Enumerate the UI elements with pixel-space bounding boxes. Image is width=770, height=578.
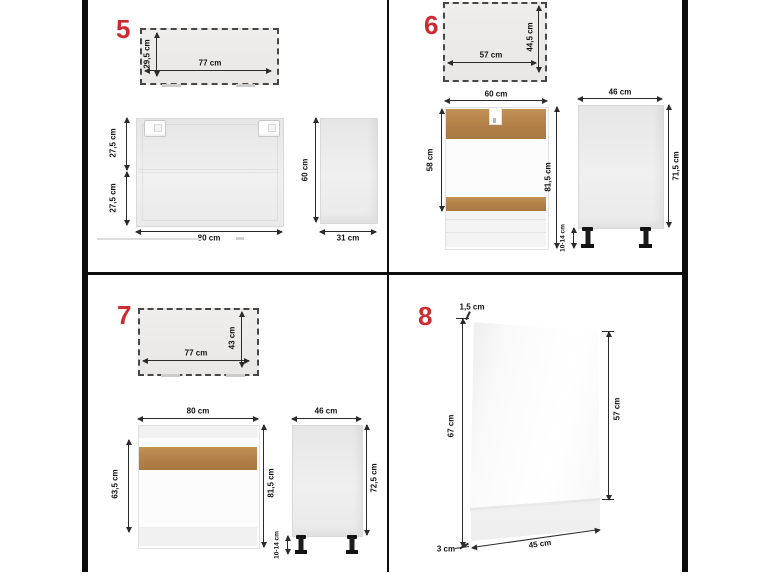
p7-front-height-label: 81,5 cm [267, 468, 276, 497]
p7-side-view [292, 425, 363, 537]
p7-front-bottom-rail [139, 528, 257, 546]
p6-front-width-label: 60 cm [485, 90, 508, 99]
p8-width-label: 45 cm [528, 538, 552, 550]
p6-side-depth-label: 46 cm [609, 88, 632, 97]
p8-height-label: 67 cm [447, 415, 456, 438]
p6-front-height-arrow [556, 107, 557, 248]
p7-side-height-arrow [366, 425, 367, 535]
p7-front-width-label: 80 cm [187, 407, 210, 416]
panel-7-number: 7 [117, 302, 131, 328]
p5-crop-artifact-mark [236, 237, 244, 240]
p6-front-opening-arrow [441, 109, 442, 211]
p7-front-door-arrow [128, 440, 129, 532]
p6-side-height-label: 71,5 cm [672, 151, 681, 180]
p8-front-height-arrow [608, 332, 609, 500]
p5-front-midline [139, 169, 279, 170]
p5-front-lower-arrow [126, 172, 127, 225]
p6-front-height-label: 81,5 cm [544, 162, 553, 191]
p6-legs-label: 10-14 cm [560, 224, 567, 252]
panel-6-number: 6 [424, 12, 438, 38]
panel-8-number: 8 [418, 303, 432, 329]
p5-front-width-arrow [136, 231, 282, 232]
frame-right-bar [682, 0, 688, 572]
p6-front-opening-label: 58 cm [426, 149, 435, 172]
p5-side-height-label: 60 cm [301, 159, 310, 182]
p8-height-arrow [462, 319, 463, 547]
p5-side-depth-label: 31 cm [337, 234, 360, 243]
p7-side-height-label: 72,5 cm [370, 463, 379, 492]
p5-topview-tab-right [236, 84, 255, 87]
p7-topview-tab-left [161, 374, 180, 377]
p7-front-door-label: 63,5 cm [111, 469, 120, 498]
p8-plinth-label: 3 cm [437, 545, 455, 554]
p6-front-skirt-seam2 [446, 232, 546, 233]
p5-topview-tab-left [162, 84, 181, 87]
p5-front-upper-label: 27,5 cm [109, 128, 118, 157]
p6-front-skirt-seam1 [446, 219, 546, 220]
p5-topview-width-arrow [145, 70, 271, 71]
p7-topview-depth-arrow [241, 312, 242, 367]
p7-leg-right [347, 535, 357, 554]
p8-front-height-label: 57 cm [613, 398, 622, 421]
p7-topview-width-arrow [143, 360, 249, 361]
p7-front-wood-band [139, 447, 257, 470]
p6-side-view [578, 105, 664, 229]
p5-side-view [320, 118, 378, 224]
p5-topview-width-label: 77 cm [199, 59, 222, 68]
p7-topview-width-label: 77 cm [185, 349, 208, 358]
p7-leg-left [296, 535, 306, 554]
p6-legs-arrow [573, 228, 574, 248]
p5-crop-artifact-line [97, 238, 202, 240]
dimension-diagram-sheet: 5 29,5 cm 77 cm 27,5 cm 27,5 cm 80 cm 60… [0, 0, 770, 578]
p8-panel-drawing [468, 316, 608, 548]
p6-front-notch-mark [493, 118, 496, 123]
p5-topview-plate [140, 28, 279, 85]
p6-front-skirt [446, 211, 546, 247]
p7-front-bottom-seam [139, 527, 257, 528]
p5-front-midline2 [139, 172, 279, 173]
p8-thickness-label: 1,5 cm [460, 303, 485, 312]
p5-topview-depth-label: 29,5 cm [143, 39, 152, 68]
p6-leg-left [582, 227, 593, 248]
p6-topview-width-label: 57 cm [480, 51, 503, 60]
p7-topview-depth-label: 43 cm [228, 327, 237, 350]
p6-side-depth-arrow [578, 98, 662, 99]
p7-legs-label: 10-14 cm [274, 531, 281, 559]
p7-front-width-arrow [138, 418, 258, 419]
frame-center-divider [387, 0, 389, 572]
p7-front-top-rail [139, 426, 257, 438]
p7-side-depth-arrow [292, 418, 361, 419]
p7-front-height-arrow [263, 425, 264, 547]
p5-side-depth-arrow [320, 231, 376, 232]
p6-topview-depth-label: 44,5 cm [526, 22, 535, 51]
frame-horizontal-divider [82, 272, 688, 275]
p7-side-depth-label: 46 cm [315, 407, 338, 416]
p5-front-upper-arrow [126, 118, 127, 170]
p6-leg-right [640, 227, 651, 248]
p7-legs-arrow [287, 536, 288, 554]
p6-front-width-arrow [445, 100, 547, 101]
p5-mount-bracket-right [258, 120, 280, 137]
p7-topview-tab-right [226, 374, 245, 377]
frame-left-bar [82, 0, 88, 572]
p6-front-wood-bottom [446, 197, 546, 211]
p6-side-height-arrow [668, 105, 669, 227]
p5-side-height-arrow [315, 118, 316, 222]
panel-5-number: 5 [116, 16, 130, 42]
p5-mount-bracket-left [144, 120, 166, 137]
p6-topview-depth-arrow [538, 6, 539, 72]
p6-topview-width-arrow [448, 62, 536, 63]
p5-front-lower-label: 27,5 cm [109, 183, 118, 212]
